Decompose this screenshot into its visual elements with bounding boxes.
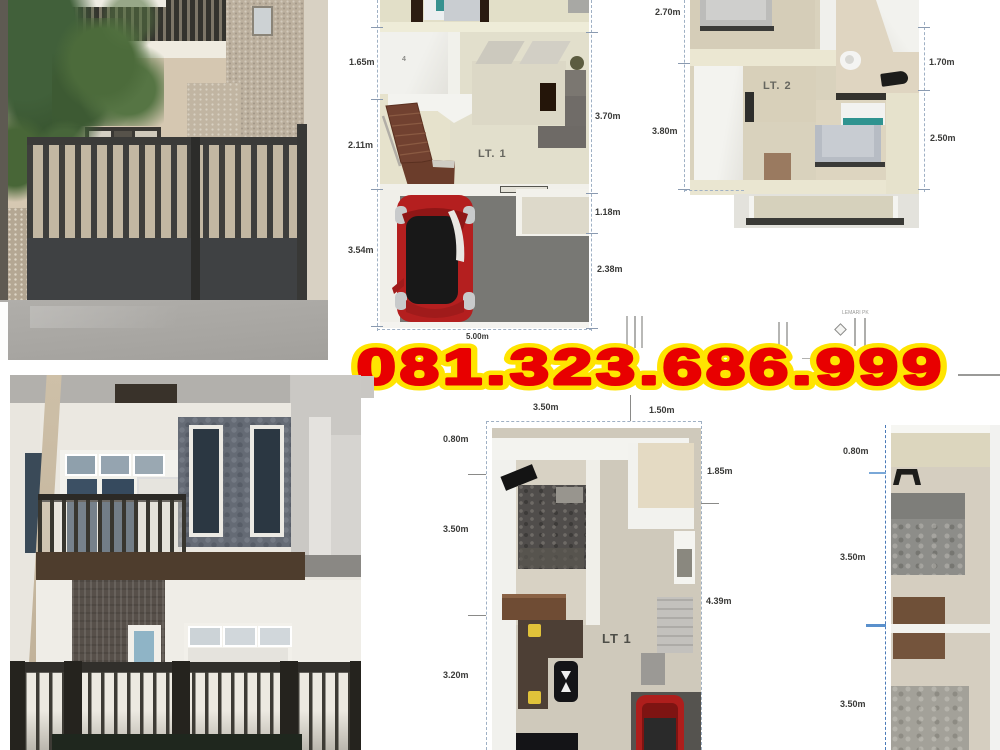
svg-text:081.323.686.999: 081.323.686.999 [357,339,945,395]
